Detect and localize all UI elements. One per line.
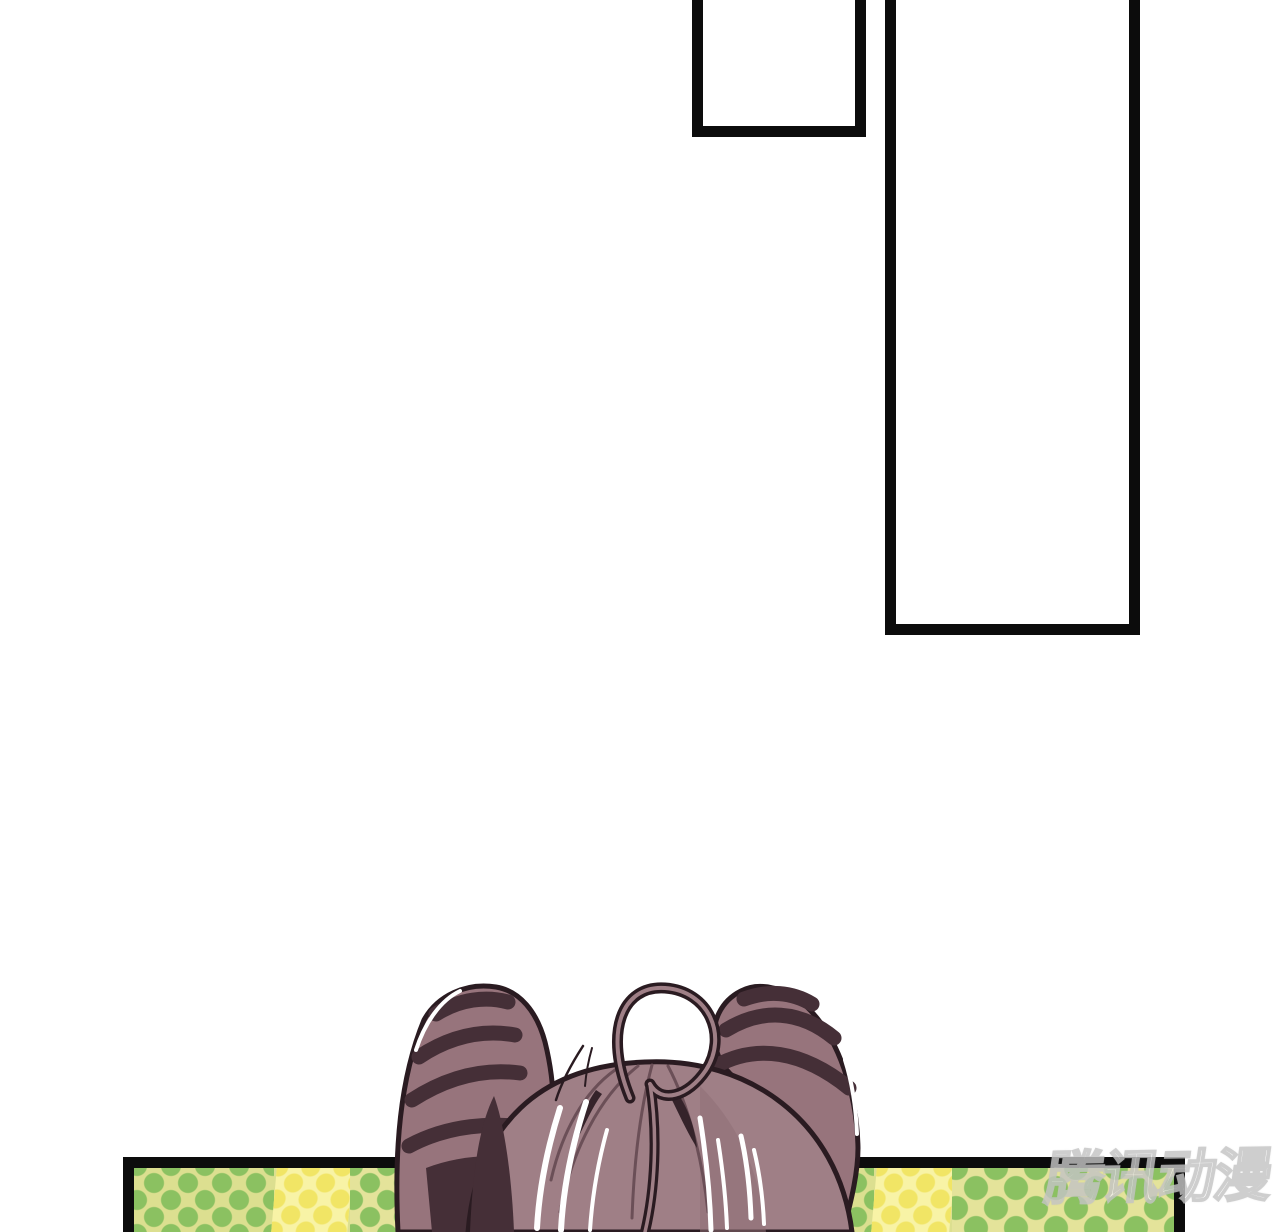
empty-panel-tall (885, 0, 1140, 635)
comic-page: 腾讯动漫 (0, 0, 1280, 1232)
dot-band-green-1 (134, 1168, 274, 1232)
tencent-comics-watermark: 腾讯动漫 (1041, 1144, 1275, 1212)
dot-band-yellow-2 (871, 1168, 955, 1232)
character-head-illustration (380, 974, 880, 1232)
empty-panel-small (692, 0, 866, 137)
dot-band-yellow-1 (271, 1168, 353, 1232)
